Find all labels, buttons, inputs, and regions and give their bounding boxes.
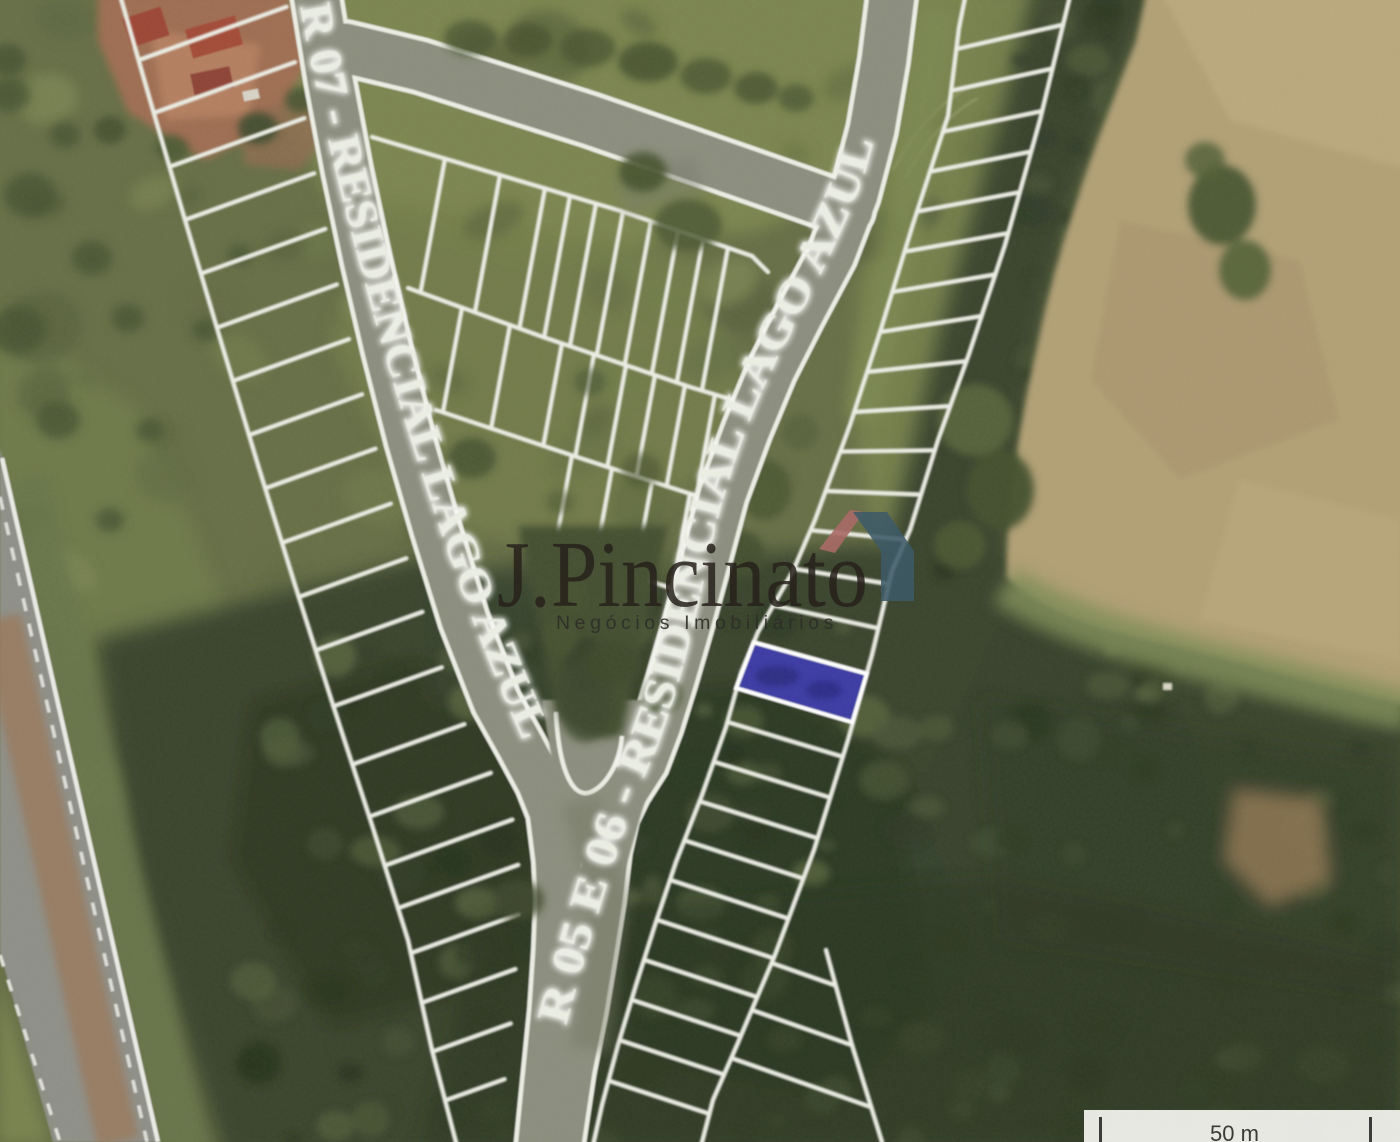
svg-text:Negócios Imobiliários: Negócios Imobiliários (556, 612, 838, 634)
svg-text:50 m: 50 m (1210, 1121, 1259, 1142)
